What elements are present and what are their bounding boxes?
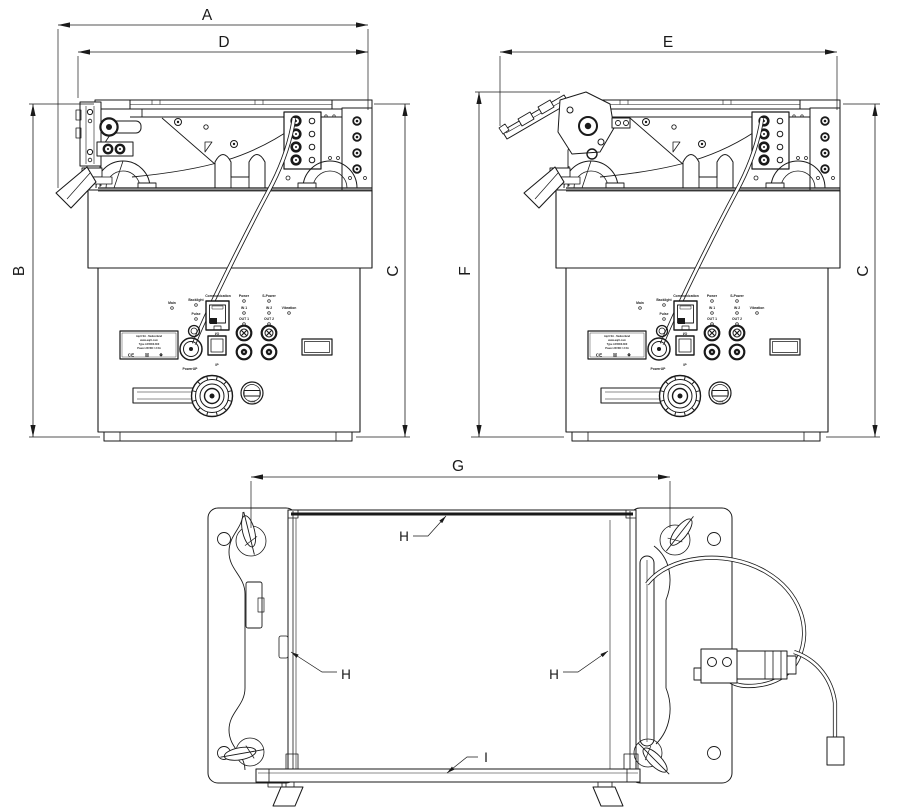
drawing-page: Aqrit SA - Switzerland www.aqrit.com Typ… <box>0 0 919 811</box>
callout-h-label: H <box>341 667 351 682</box>
side-view-closed: A D B C <box>11 7 410 441</box>
top-view: G H H H I <box>208 458 844 806</box>
side-view-open: E F C <box>457 34 880 441</box>
dim-c2-label: C <box>855 265 872 276</box>
dim-e-label: E <box>663 34 673 51</box>
dim-f-label: F <box>457 266 474 275</box>
callout-h-label: H <box>399 529 409 544</box>
technical-drawing: Aqrit SA - Switzerland www.aqrit.com Typ… <box>0 0 919 811</box>
dim-d-label: D <box>218 34 229 51</box>
dimension-d: D <box>78 34 368 98</box>
dim-a-label: A <box>202 7 213 24</box>
device-body-top <box>279 510 638 778</box>
front-bar <box>256 769 640 806</box>
dimension-f: F <box>457 92 564 437</box>
printer-head-closed <box>76 100 141 166</box>
dim-b-label: B <box>11 266 28 276</box>
dim-c-label: C <box>385 265 402 276</box>
callout-i-label: I <box>484 750 488 765</box>
dim-g-label: G <box>452 458 464 475</box>
external-cable-tail <box>794 652 844 765</box>
cable-connector-assembly <box>694 649 796 683</box>
callout-h-label: H <box>549 667 559 682</box>
